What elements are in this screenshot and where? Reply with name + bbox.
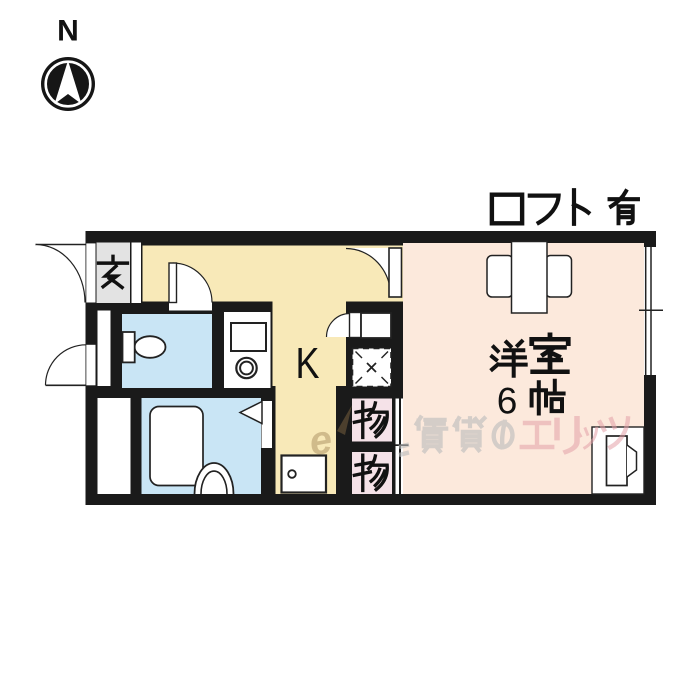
svg-text:K: K xyxy=(296,339,320,388)
svg-text:N: N xyxy=(57,15,79,48)
svg-text:6: 6 xyxy=(497,381,518,422)
